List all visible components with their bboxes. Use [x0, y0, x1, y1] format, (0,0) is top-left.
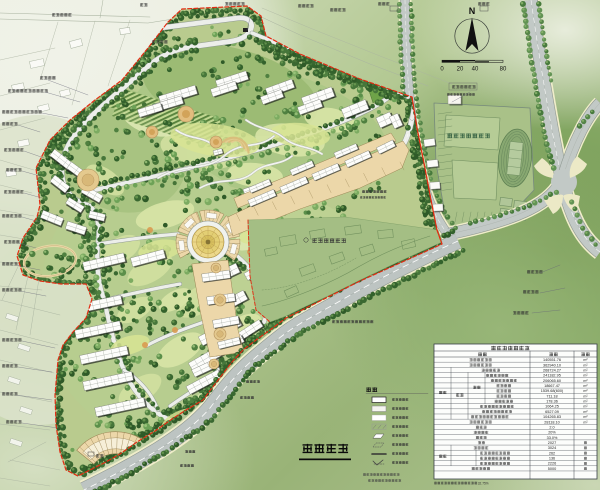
- svg-text:33.0%: 33.0%: [547, 436, 558, 440]
- svg-text:241182.95: 241182.95: [543, 374, 561, 378]
- svg-text:178.36: 178.36: [546, 400, 558, 404]
- svg-text:3024: 3024: [548, 446, 556, 450]
- svg-text:136: 136: [549, 457, 555, 461]
- svg-text:N: N: [469, 6, 476, 16]
- svg-text:40: 40: [472, 67, 479, 73]
- svg-text:104265.83: 104265.83: [543, 415, 561, 419]
- svg-text:2226: 2226: [548, 462, 556, 466]
- svg-text:18667.47: 18667.47: [544, 384, 560, 388]
- svg-text:362940.10: 362940.10: [543, 363, 561, 367]
- svg-text:268724.27: 268724.27: [543, 368, 561, 372]
- svg-text:1064.25: 1064.25: [545, 405, 559, 409]
- svg-text:206065.60: 206065.60: [543, 379, 561, 383]
- svg-text:6527.09: 6527.09: [545, 410, 559, 414]
- svg-text:: 32.75%: : 32.75%: [476, 482, 489, 486]
- svg-text:20%: 20%: [548, 431, 556, 435]
- svg-text:20: 20: [457, 67, 464, 73]
- svg-text:262: 262: [549, 451, 555, 455]
- svg-text:140551.76: 140551.76: [543, 358, 561, 362]
- svg-text:711.18: 711.18: [546, 394, 557, 398]
- svg-text:2027: 2027: [548, 441, 556, 445]
- svg-text:1539.68(600): 1539.68(600): [541, 389, 564, 393]
- svg-text:2.0: 2.0: [549, 425, 554, 429]
- svg-text:5000: 5000: [548, 467, 556, 471]
- svg-text:28118.10: 28118.10: [544, 420, 560, 424]
- svg-text:80: 80: [500, 67, 507, 73]
